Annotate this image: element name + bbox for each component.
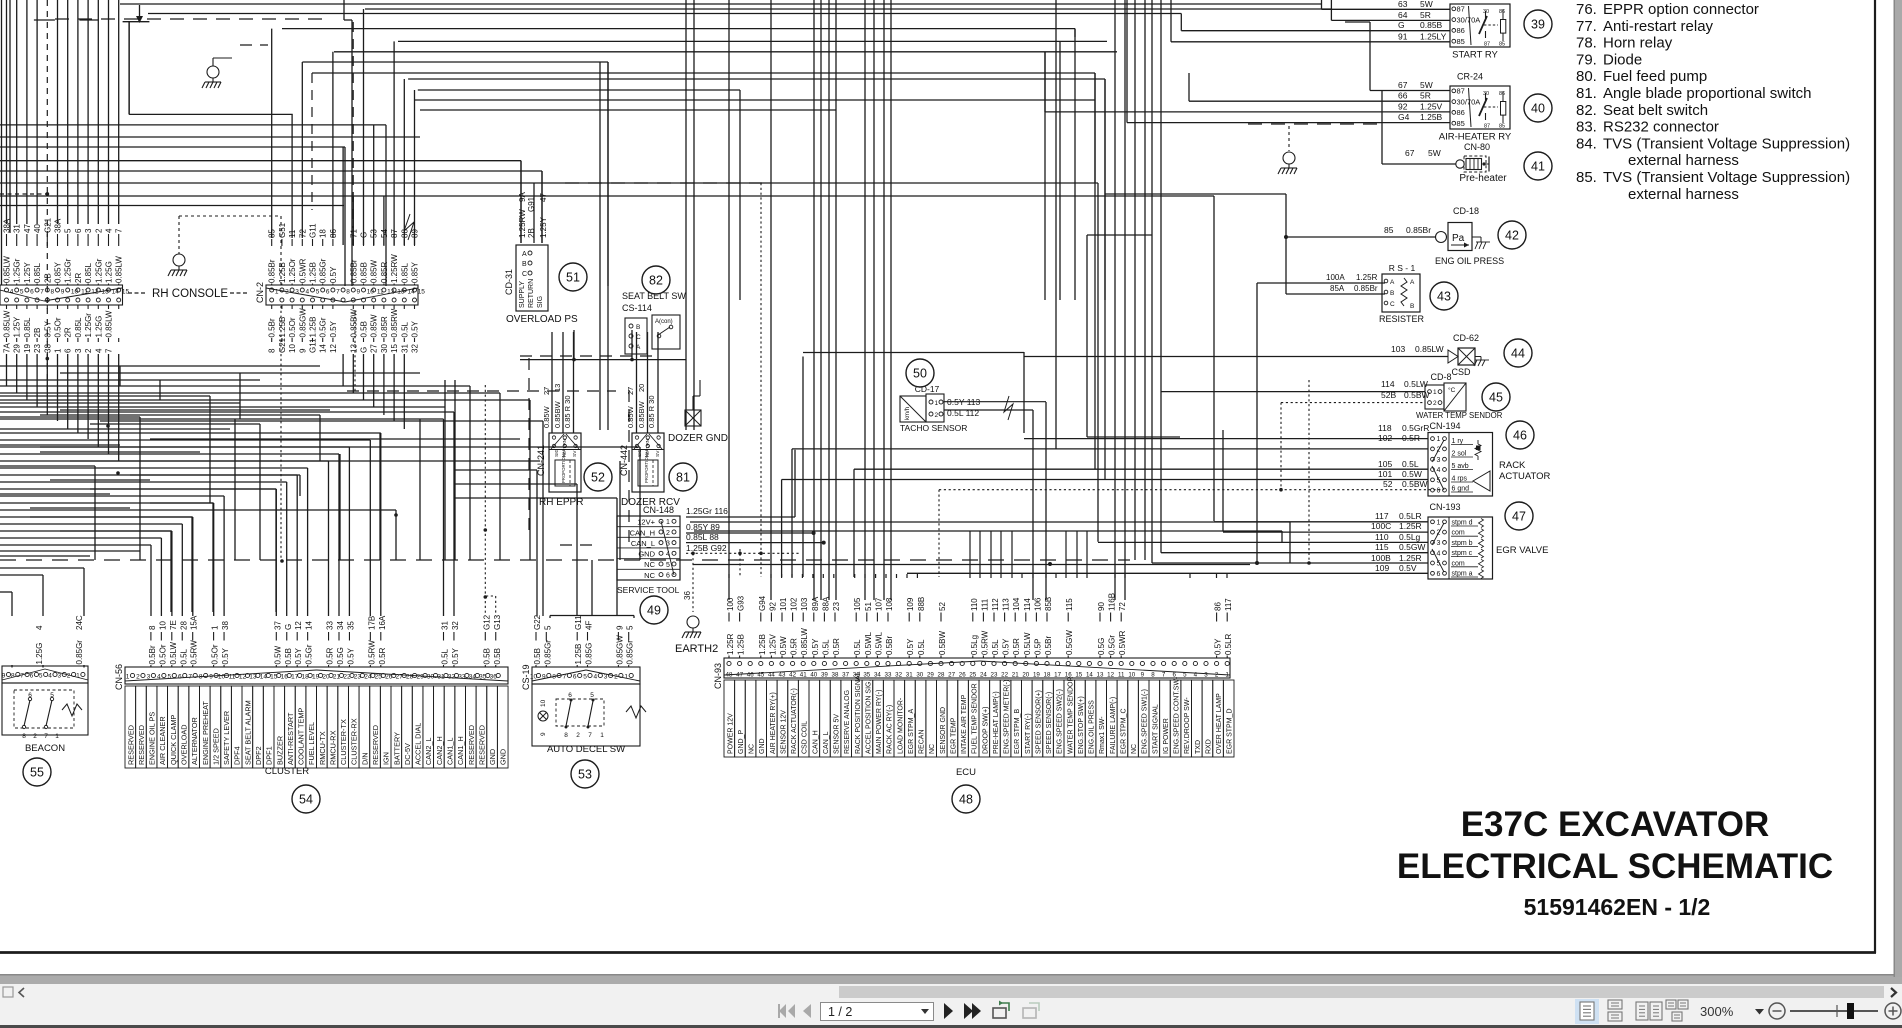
svg-text:9: 9 <box>542 674 546 681</box>
svg-text:6: 6 <box>326 289 330 296</box>
svg-text:81.: 81. <box>1576 85 1597 102</box>
svg-text:0.85L: 0.85L <box>33 262 42 283</box>
svg-text:NC: NC <box>929 744 936 754</box>
svg-text:G21: G21 <box>43 217 52 233</box>
svg-text:101: 101 <box>779 597 788 611</box>
svg-text:Horn relay: Horn relay <box>1603 35 1673 52</box>
svg-text:2: 2 <box>136 674 140 681</box>
svg-text:0.85LW: 0.85LW <box>1415 344 1444 354</box>
svg-text:89A: 89A <box>811 596 820 611</box>
svg-text:km/h: km/h <box>905 407 911 420</box>
svg-text:41: 41 <box>1531 160 1545 174</box>
svg-text:0.85GW: 0.85GW <box>298 308 307 338</box>
svg-text:42: 42 <box>1505 229 1519 243</box>
svg-text:0.85R: 0.85R <box>380 316 389 338</box>
svg-text:30: 30 <box>1483 91 1489 97</box>
svg-text:9: 9 <box>1141 672 1145 679</box>
svg-text:9: 9 <box>209 674 213 681</box>
svg-text:0.5LR: 0.5LR <box>1399 511 1422 521</box>
svg-text:100B: 100B <box>1371 553 1391 563</box>
svg-text:G91: G91 <box>527 196 536 212</box>
svg-text:1.25Or: 1.25Or <box>288 258 297 283</box>
svg-text:103: 103 <box>1391 344 1405 354</box>
svg-text:82: 82 <box>649 274 663 288</box>
svg-text:14: 14 <box>319 344 328 353</box>
svg-text:115: 115 <box>1375 542 1389 552</box>
svg-text:0.85LW: 0.85LW <box>105 310 114 337</box>
svg-text:0.5Or: 0.5Or <box>288 317 297 337</box>
svg-text:6 gnd: 6 gnd <box>1452 486 1470 493</box>
svg-text:0.5Y: 0.5Y <box>329 320 338 337</box>
svg-text:3: 3 <box>295 289 299 296</box>
svg-text:5 avb: 5 avb <box>1452 463 1469 470</box>
svg-text:77.: 77. <box>1576 18 1597 35</box>
svg-text:110: 110 <box>1375 532 1389 542</box>
svg-text:CS-19: CS-19 <box>521 664 531 690</box>
svg-text:A: A <box>636 344 641 351</box>
svg-text:0.5B: 0.5B <box>493 648 502 664</box>
svg-text:CN-80: CN-80 <box>1464 142 1490 152</box>
svg-text:6: 6 <box>1437 488 1441 495</box>
svg-text:0.85L: 0.85L <box>74 317 83 338</box>
svg-text:0.5Y: 0.5Y <box>329 266 338 283</box>
svg-text:MAIN POWER RY(-): MAIN POWER RY(-) <box>876 690 883 754</box>
svg-text:CD-31: CD-31 <box>504 269 514 295</box>
svg-text:1.25Gr 116: 1.25Gr 116 <box>686 506 728 516</box>
svg-text:CSD COIL: CSD COIL <box>802 721 809 754</box>
svg-text:1: 1 <box>54 348 63 353</box>
svg-text:83.: 83. <box>1576 119 1597 136</box>
svg-text:5R: 5R <box>1420 91 1431 101</box>
svg-text:0.85L: 0.85L <box>400 262 409 283</box>
svg-text:117: 117 <box>1224 598 1233 611</box>
svg-text:0.85R: 0.85R <box>380 261 389 283</box>
svg-text:G12: G12 <box>482 614 491 630</box>
svg-text:5: 5 <box>167 674 171 681</box>
svg-text:49: 49 <box>647 604 661 618</box>
svg-text:C: C <box>1390 301 1395 308</box>
svg-text:102: 102 <box>1378 433 1392 443</box>
svg-text:2: 2 <box>614 674 618 681</box>
svg-text:EGR STPM_C: EGR STPM_C <box>1120 708 1127 754</box>
svg-text:87: 87 <box>1484 124 1490 130</box>
svg-text:0.5R: 0.5R <box>790 638 799 655</box>
svg-text:11: 11 <box>1118 672 1125 679</box>
svg-text:0.5WR: 0.5WR <box>298 258 307 283</box>
svg-text:20: 20 <box>637 384 646 392</box>
svg-text:110: 110 <box>970 598 979 611</box>
svg-text:G94: G94 <box>758 595 767 611</box>
svg-text:37: 37 <box>842 672 849 679</box>
svg-text:100: 100 <box>726 597 735 611</box>
svg-text:32: 32 <box>895 672 902 679</box>
svg-text:6: 6 <box>74 228 83 233</box>
svg-text:30/70A: 30/70A <box>1457 15 1481 24</box>
svg-text:0.85RW: 0.85RW <box>390 308 399 337</box>
svg-text:NC: NC <box>644 571 655 580</box>
svg-text:0.5W: 0.5W <box>1402 469 1422 479</box>
svg-text:27: 27 <box>948 672 955 679</box>
svg-text:33: 33 <box>885 672 892 679</box>
svg-text:8: 8 <box>564 732 568 739</box>
svg-text:34: 34 <box>874 672 881 679</box>
svg-text:RACK ACTUATOR(-): RACK ACTUATOR(-) <box>791 688 798 754</box>
svg-text:0.5WL: 0.5WL <box>864 631 873 655</box>
svg-text:5: 5 <box>50 692 54 699</box>
svg-text:1: 1 <box>1437 519 1441 526</box>
svg-text:SENSOR 12V: SENSOR 12V <box>780 710 787 754</box>
svg-text:30/70A: 30/70A <box>1457 97 1481 106</box>
svg-text:64: 64 <box>1398 10 1408 20</box>
svg-text:85.: 85. <box>1576 169 1597 186</box>
svg-text:0.85W: 0.85W <box>370 314 379 338</box>
svg-text:1.25B: 1.25B <box>309 262 318 283</box>
svg-text:0.5Lg: 0.5Lg <box>1399 532 1421 542</box>
svg-text:0.5Y: 0.5Y <box>346 647 355 664</box>
svg-text:18: 18 <box>319 229 328 238</box>
svg-text:0.5B: 0.5B <box>360 321 369 337</box>
svg-text:0.5L: 0.5L <box>853 639 862 655</box>
svg-text:ACCEL DIAL: ACCEL DIAL <box>414 723 423 765</box>
svg-text:9: 9 <box>615 625 624 630</box>
svg-text:ACTUATOR: ACTUATOR <box>1499 471 1551 482</box>
svg-text:AIR-HEATER RY: AIR-HEATER RY <box>1439 132 1512 143</box>
svg-text:RMCU-RX: RMCU-RX <box>328 730 337 765</box>
svg-text:25: 25 <box>375 674 383 681</box>
svg-text:TACHO SENSOR: TACHO SENSOR <box>900 423 967 433</box>
svg-text:0.85Y: 0.85Y <box>411 261 420 283</box>
svg-text:B: B <box>1390 290 1394 297</box>
svg-text:DROOP SW(+): DROOP SW(+) <box>982 706 989 754</box>
svg-text:1.25Y: 1.25Y <box>539 216 548 238</box>
svg-text:38: 38 <box>221 621 230 630</box>
svg-text:63: 63 <box>1398 0 1408 9</box>
svg-text:15: 15 <box>418 289 426 296</box>
svg-text:PROPORTIONAL: PROPORTIONAL <box>644 448 649 483</box>
svg-text:10: 10 <box>288 344 297 353</box>
svg-text:14: 14 <box>1086 672 1093 679</box>
svg-text:0.5WL: 0.5WL <box>874 631 883 655</box>
svg-text:7E: 7E <box>169 620 178 630</box>
svg-text:EGR VALVE: EGR VALVE <box>1496 545 1548 556</box>
svg-text:0.5G: 0.5G <box>336 647 345 664</box>
svg-text:82.: 82. <box>1576 102 1597 119</box>
svg-text:SENSOR 5V: SENSOR 5V <box>834 714 841 754</box>
svg-text:B: B <box>636 324 640 331</box>
svg-text:7: 7 <box>40 289 44 296</box>
svg-text:1.25B: 1.25B <box>309 317 318 338</box>
svg-text:5: 5 <box>583 674 587 681</box>
svg-text:START SIGNAL: START SIGNAL <box>1152 704 1159 754</box>
svg-text:1: 1 <box>624 674 628 681</box>
svg-text:RESERVE ANALOG: RESERVE ANALOG <box>844 690 851 754</box>
svg-text:2: 2 <box>666 530 670 537</box>
svg-text:104: 104 <box>1012 597 1021 611</box>
svg-text:23: 23 <box>991 672 998 679</box>
svg-text:0.85Y: 0.85Y <box>54 261 63 283</box>
svg-text:7: 7 <box>20 673 24 680</box>
svg-text:C: C <box>636 334 641 341</box>
svg-text:0.5L: 0.5L <box>400 321 409 337</box>
svg-text:52: 52 <box>1383 479 1393 489</box>
svg-text:0.85Gr: 0.85Gr <box>626 640 635 665</box>
svg-text:23: 23 <box>832 602 841 611</box>
svg-text:103: 103 <box>800 597 809 611</box>
svg-text:113: 113 <box>1002 598 1011 611</box>
svg-text:com: com <box>1452 560 1465 567</box>
svg-text:IG POWER: IG POWER <box>1163 718 1170 754</box>
svg-text:12: 12 <box>294 621 303 630</box>
svg-text:0.85Br: 0.85Br <box>268 259 277 283</box>
svg-text:0.5Or: 0.5Or <box>211 644 220 664</box>
svg-text:0.5L: 0.5L <box>821 639 830 655</box>
svg-text:stpm a: stpm a <box>1452 571 1473 578</box>
svg-text:0.5Br: 0.5Br <box>148 645 157 664</box>
svg-text:CAN_L: CAN_L <box>823 731 830 754</box>
svg-text:TVS (Transient Voltage Suppres: TVS (Transient Voltage Suppression) <box>1603 169 1850 186</box>
svg-text:2: 2 <box>1433 400 1437 407</box>
svg-text:5R: 5R <box>1420 10 1431 20</box>
svg-text:1/2 SPEED: 1/2 SPEED <box>211 728 220 765</box>
svg-text:4F: 4F <box>585 621 594 630</box>
svg-text:ENGINE OIL PS: ENGINE OIL PS <box>148 712 157 765</box>
svg-text:16A: 16A <box>378 615 387 630</box>
svg-text:CAN_H: CAN_H <box>630 528 655 537</box>
svg-text:54: 54 <box>299 793 313 807</box>
svg-text:78.: 78. <box>1576 35 1597 52</box>
svg-text:2: 2 <box>935 412 939 419</box>
svg-text:FAILURE LAMP(-): FAILURE LAMP(-) <box>1110 697 1117 754</box>
svg-text:1 / 2: 1 / 2 <box>828 1005 852 1019</box>
svg-text:ECU: ECU <box>956 767 976 778</box>
svg-text:1.25Gr: 1.25Gr <box>94 258 103 283</box>
svg-text:WATER TEMP SENDOR: WATER TEMP SENDOR <box>1067 676 1074 754</box>
svg-text:TXD: TXD <box>1195 740 1202 754</box>
svg-text:87: 87 <box>1484 42 1490 48</box>
svg-text:GND_P: GND_P <box>738 730 745 754</box>
svg-text:0.85BW: 0.85BW <box>349 309 358 338</box>
svg-text:6: 6 <box>573 674 577 681</box>
svg-text:116B: 116B <box>1108 593 1117 611</box>
svg-text:CN-193: CN-193 <box>1429 502 1460 512</box>
svg-text:0.5RW: 0.5RW <box>190 640 199 665</box>
svg-text:86: 86 <box>1214 602 1223 611</box>
svg-text:CD-8: CD-8 <box>1430 372 1451 382</box>
svg-text:CLUSTER-RX: CLUSTER-RX <box>350 718 359 765</box>
svg-text:28: 28 <box>406 674 414 681</box>
svg-text:39: 39 <box>821 672 828 679</box>
svg-text:R S - 1: R S - 1 <box>1389 263 1416 273</box>
svg-text:RS232 connector: RS232 connector <box>1603 119 1719 136</box>
svg-text:0.5Br: 0.5Br <box>268 318 277 337</box>
svg-text:1.25R: 1.25R <box>1399 521 1422 531</box>
svg-text:72: 72 <box>298 229 307 238</box>
svg-text:0.5Gr: 0.5Gr <box>305 644 314 664</box>
svg-text:27: 27 <box>626 387 635 395</box>
svg-text:2: 2 <box>94 228 103 233</box>
svg-text:0.5L: 0.5L <box>1402 459 1419 469</box>
svg-text:ENGINE PREHEAT: ENGINE PREHEAT <box>201 701 210 765</box>
svg-text:47: 47 <box>1512 510 1526 524</box>
svg-text:10: 10 <box>218 674 226 681</box>
svg-text:0.5Y: 0.5Y <box>411 320 420 337</box>
svg-text:2R: 2R <box>74 273 83 283</box>
svg-text:GND: GND <box>499 749 508 765</box>
svg-text:0.5R: 0.5R <box>1402 433 1420 443</box>
svg-text:52B: 52B <box>1381 390 1396 400</box>
svg-text:1.25B: 1.25B <box>758 634 767 655</box>
svg-text:4: 4 <box>10 289 14 296</box>
svg-text:106: 106 <box>1033 597 1042 611</box>
svg-text:0.85W: 0.85W <box>370 259 379 283</box>
svg-text:8: 8 <box>346 289 350 296</box>
svg-text:0.85B: 0.85B <box>360 262 369 283</box>
svg-text:NC: NC <box>644 560 655 569</box>
svg-text:2: 2 <box>33 733 37 740</box>
svg-text:15A: 15A <box>190 615 199 630</box>
svg-text:1.25R: 1.25R <box>726 633 735 655</box>
svg-text:0.5Lg: 0.5Lg <box>970 635 979 655</box>
svg-text:SIG: SIG <box>554 448 560 457</box>
svg-text:0.5Y: 0.5Y <box>1002 638 1011 655</box>
svg-text:SENSOR GND: SENSOR GND <box>940 707 947 754</box>
svg-text:1.25B: 1.25B <box>574 644 583 665</box>
svg-text:102: 102 <box>790 597 799 611</box>
svg-text:46: 46 <box>747 672 754 679</box>
svg-text:47: 47 <box>539 193 548 202</box>
svg-text:88B: 88B <box>917 597 926 611</box>
svg-text:EGR STPM_D: EGR STPM_D <box>1227 708 1234 754</box>
svg-text:B: B <box>1410 303 1414 310</box>
svg-text:92: 92 <box>1398 101 1408 111</box>
svg-text:42: 42 <box>789 672 796 679</box>
svg-text:2R: 2R <box>64 327 73 337</box>
svg-text:0.5Y: 0.5Y <box>906 638 915 655</box>
svg-text:90: 90 <box>1097 602 1106 611</box>
svg-text:RESERVED: RESERVED <box>137 725 146 765</box>
svg-text:G93: G93 <box>737 595 746 611</box>
svg-text:85: 85 <box>1499 42 1505 48</box>
svg-text:2B: 2B <box>33 328 42 338</box>
svg-text:0.5Br: 0.5Br <box>1044 636 1053 655</box>
svg-text:0.5Y: 0.5Y <box>294 647 303 664</box>
svg-text:Angle blade proportional switc: Angle blade proportional switch <box>1603 85 1811 102</box>
svg-text:47: 47 <box>23 224 32 233</box>
svg-text:CN-93: CN-93 <box>713 663 723 689</box>
svg-text:0.85Gr: 0.85Gr <box>75 640 84 665</box>
svg-text:AIR CLEANER: AIR CLEANER <box>158 716 167 765</box>
svg-text:B: B <box>522 261 527 268</box>
svg-text:CD-62: CD-62 <box>1453 333 1479 343</box>
svg-text:DPF2: DPF2 <box>254 746 263 765</box>
svg-text:0.5Gr: 0.5Gr <box>1108 635 1117 655</box>
svg-text:8: 8 <box>1151 672 1155 679</box>
svg-text:0.5Gr: 0.5Gr <box>319 317 328 337</box>
svg-text:ENG.SPEED CONT.SW-: ENG.SPEED CONT.SW- <box>1174 676 1181 754</box>
svg-text:5: 5 <box>39 673 43 680</box>
svg-text:21: 21 <box>1012 672 1019 679</box>
svg-text:31: 31 <box>441 621 450 630</box>
svg-text:12: 12 <box>329 344 338 353</box>
svg-text:27: 27 <box>542 387 551 395</box>
svg-text:0.85Gr: 0.85Gr <box>319 258 328 283</box>
svg-text:85: 85 <box>1384 225 1394 235</box>
svg-text:PRE-HEAT LAMP(-): PRE-HEAT LAMP(-) <box>993 691 1000 754</box>
svg-text:5W: 5W <box>1420 0 1433 9</box>
svg-text:external harness: external harness <box>1628 152 1739 169</box>
svg-text:67: 67 <box>1398 80 1408 90</box>
svg-text:16: 16 <box>281 674 289 681</box>
svg-text:0.85Br: 0.85Br <box>349 259 358 283</box>
svg-text:Anti-restart relay: Anti-restart relay <box>1603 18 1714 35</box>
svg-text:EARTH2: EARTH2 <box>675 643 718 655</box>
svg-text:3: 3 <box>84 228 93 233</box>
svg-text:ENG.SPEED SW2(-): ENG.SPEED SW2(-) <box>1057 689 1064 754</box>
svg-text:41: 41 <box>800 672 807 679</box>
svg-text:0.5Y: 0.5Y <box>1214 638 1223 655</box>
svg-text:1.25B: 1.25B <box>737 634 746 655</box>
svg-text:48: 48 <box>959 793 973 807</box>
svg-text:CAN1_L: CAN1_L <box>446 737 455 765</box>
svg-text:5W: 5W <box>1428 148 1441 158</box>
svg-text:stpm c: stpm c <box>1452 550 1473 557</box>
svg-text:CN-148: CN-148 <box>643 505 674 515</box>
svg-text:22: 22 <box>1001 672 1008 679</box>
svg-text:POWER 12V: POWER 12V <box>727 713 734 754</box>
svg-text:1: 1 <box>76 673 80 680</box>
svg-text:10: 10 <box>530 674 538 681</box>
svg-text:stpm d: stpm d <box>1452 520 1473 527</box>
svg-text:67: 67 <box>1405 148 1415 158</box>
svg-text:36: 36 <box>683 591 692 600</box>
svg-text:BEACON: BEACON <box>25 743 65 754</box>
svg-text:0.85W: 0.85W <box>542 405 551 428</box>
svg-text:6: 6 <box>1437 571 1441 578</box>
svg-text:RESERVED: RESERVED <box>467 725 476 765</box>
svg-text:°C: °C <box>1448 386 1456 394</box>
svg-text:A: A <box>1390 279 1395 286</box>
svg-text:0.85LW: 0.85LW <box>3 256 12 283</box>
svg-text:7: 7 <box>336 289 340 296</box>
svg-text:0.5Y: 0.5Y <box>221 647 230 664</box>
svg-text:0.5L: 0.5L <box>917 639 926 655</box>
svg-text:0.5B: 0.5B <box>284 648 293 664</box>
svg-text:1: 1 <box>211 625 220 630</box>
svg-text:100C: 100C <box>1371 521 1391 531</box>
svg-text:6: 6 <box>30 673 34 680</box>
svg-text:0.5BW: 0.5BW <box>1402 479 1428 489</box>
svg-text:G: G <box>1398 20 1405 30</box>
svg-text:EPPR option connector: EPPR option connector <box>1603 1 1759 18</box>
svg-text:2: 2 <box>1215 672 1219 679</box>
svg-text:92: 92 <box>768 602 777 611</box>
svg-text:ELECTRICAL SCHEMATIC: ELECTRICAL SCHEMATIC <box>1397 847 1833 886</box>
svg-text:EGR STPM_A: EGR STPM_A <box>908 709 915 754</box>
svg-text:2: 2 <box>576 732 580 739</box>
svg-text:114: 114 <box>1381 379 1395 389</box>
svg-text:6: 6 <box>28 692 32 699</box>
svg-text:1.25B: 1.25B <box>278 317 287 338</box>
svg-text:4: 4 <box>48 673 52 680</box>
svg-text:1.25V: 1.25V <box>768 633 777 655</box>
svg-text:7: 7 <box>105 348 114 353</box>
svg-text:87: 87 <box>1457 87 1465 96</box>
svg-text:80.: 80. <box>1576 68 1597 85</box>
svg-text:5: 5 <box>64 228 73 233</box>
svg-text:A: A <box>1410 279 1415 286</box>
svg-text:1.25Gr: 1.25Gr <box>84 313 93 338</box>
svg-text:30: 30 <box>1483 9 1489 15</box>
